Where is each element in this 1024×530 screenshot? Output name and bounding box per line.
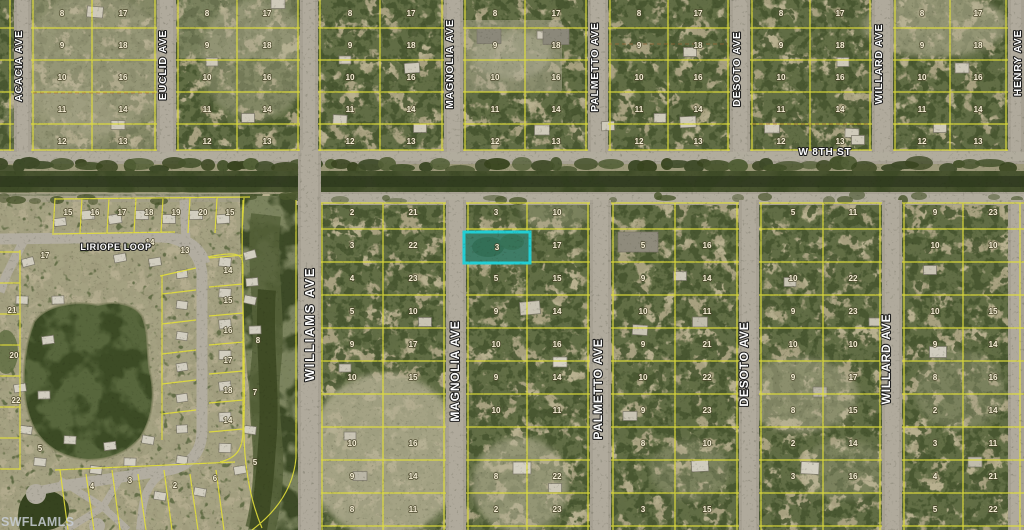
svg-text:SWFLAMLS: SWFLAMLS — [1, 515, 74, 529]
